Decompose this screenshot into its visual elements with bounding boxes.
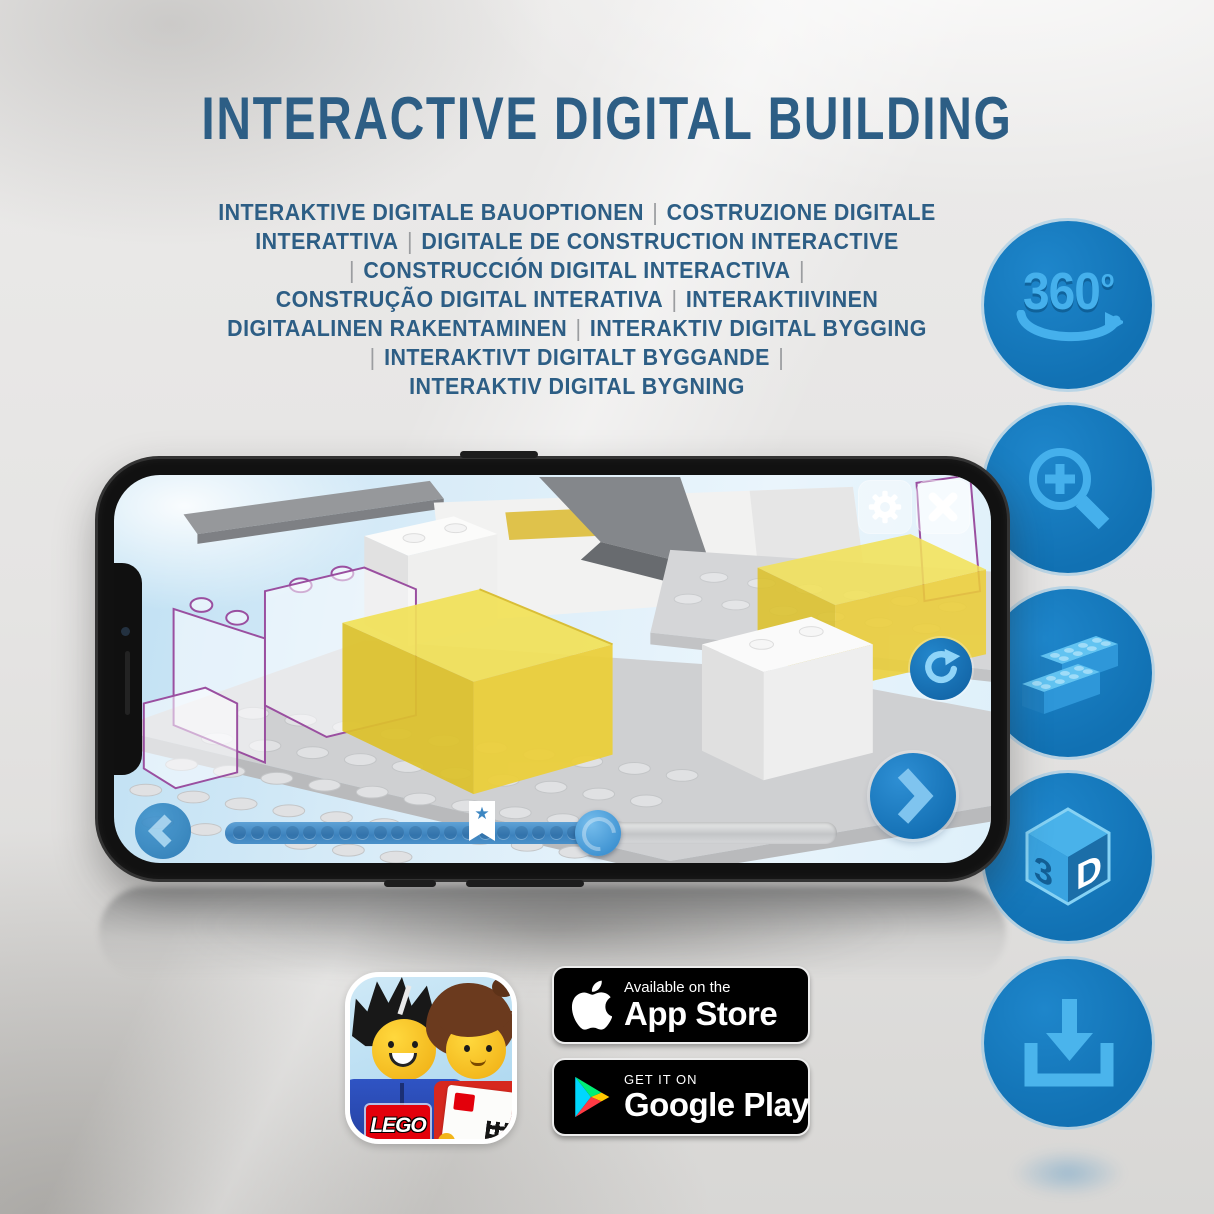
progress-dot	[444, 826, 457, 839]
next-step-button[interactable]	[870, 753, 956, 839]
gear-icon	[867, 489, 903, 525]
phone-volume-button	[384, 880, 436, 887]
subtitle-line: INTERAKTIV DIGITAL BYGNING	[40, 372, 1113, 401]
app-screen: ★	[114, 475, 991, 863]
progress-dot	[374, 826, 387, 839]
phone-reflection	[99, 887, 1006, 979]
magnifier-plus-icon	[1016, 437, 1120, 541]
progress-dot	[409, 826, 422, 839]
next-arrow-icon	[870, 753, 956, 839]
progress-dot	[391, 826, 404, 839]
google-play-tagline: GET IT ON	[624, 1072, 809, 1087]
progress-dot	[515, 826, 528, 839]
progress-dot	[251, 826, 264, 839]
phone-notch	[114, 563, 142, 775]
rotate-button[interactable]	[910, 638, 972, 700]
poster-background: INTERACTIVE DIGITAL BUILDING INTERAKTIVE…	[0, 0, 1214, 1214]
progress-dot	[497, 826, 510, 839]
google-play-name: Google Play	[624, 1087, 809, 1123]
progress-dot	[268, 826, 281, 839]
page-title: INTERACTIVE DIGITAL BUILDING	[0, 84, 1214, 153]
app-store-tagline: Available on the	[624, 979, 777, 996]
lego-logo: LEGO	[366, 1105, 430, 1144]
progress-dot	[339, 826, 352, 839]
app-store-name: App Store	[624, 996, 777, 1032]
google-play-badge[interactable]: GET IT ON Google Play	[552, 1058, 810, 1136]
lego-3d-build-scene	[114, 475, 991, 863]
subtitle-line: |INTERAKTIVT DIGITALT BYGGANDE|	[40, 343, 1113, 372]
app-store-badge[interactable]: Available on the App Store	[552, 966, 810, 1044]
speaker-slit	[125, 651, 130, 715]
3d-cube-icon	[1012, 801, 1124, 913]
progress-dot	[321, 826, 334, 839]
circle-reflection	[990, 1140, 1146, 1206]
progress-dot	[286, 826, 299, 839]
lego-app-icon[interactable]: LEGO	[345, 972, 517, 1144]
phone-volume-button	[466, 880, 584, 887]
subtitle-line: DIGITAALINEN RAKENTAMINEN|INTERAKTIV DIG…	[40, 314, 1113, 343]
progress-dot	[356, 826, 369, 839]
subtitle-line: |CONSTRUCCIÓN DIGITAL INTERACTIVA|	[40, 256, 1113, 285]
girl-minifig-hand	[438, 1133, 455, 1144]
settings-button[interactable]	[858, 480, 912, 534]
previous-step-button[interactable]	[135, 803, 191, 859]
download-arrow-icon	[1012, 993, 1124, 1093]
close-button[interactable]	[916, 480, 970, 534]
progress-dot	[550, 826, 563, 839]
progress-dot	[427, 826, 440, 839]
progress-dot	[233, 826, 246, 839]
qr-code	[484, 1121, 513, 1144]
subtitle-line: CONSTRUÇÃO DIGITAL INTERATIVA|INTERAKTII…	[40, 285, 1113, 314]
rotate-icon	[919, 647, 963, 691]
progress-fill	[225, 822, 598, 844]
progress-bar[interactable]: ★	[225, 822, 837, 844]
feature-download-icon	[984, 959, 1152, 1127]
phone-power-button	[460, 451, 538, 458]
phone: ★	[95, 456, 1010, 882]
google-play-icon	[570, 1074, 612, 1120]
progress-dot	[532, 826, 545, 839]
progress-handle[interactable]	[575, 810, 621, 856]
apple-icon	[570, 980, 612, 1030]
subtitle-line: INTERAKTIVE DIGITALE BAUOPTIONEN|COSTRUZ…	[40, 198, 1113, 227]
camera-dot	[121, 627, 130, 636]
subtitle-line: INTERATTIVA|DIGITALE DE CONSTRUCTION INT…	[40, 227, 1113, 256]
lego-bricks-icon	[1010, 622, 1126, 724]
previous-arrow-icon	[135, 803, 191, 859]
progress-dot	[303, 826, 316, 839]
close-icon	[926, 490, 960, 524]
multilingual-subtitle: INTERAKTIVE DIGITALE BAUOPTIONEN|COSTRUZ…	[0, 198, 1154, 401]
